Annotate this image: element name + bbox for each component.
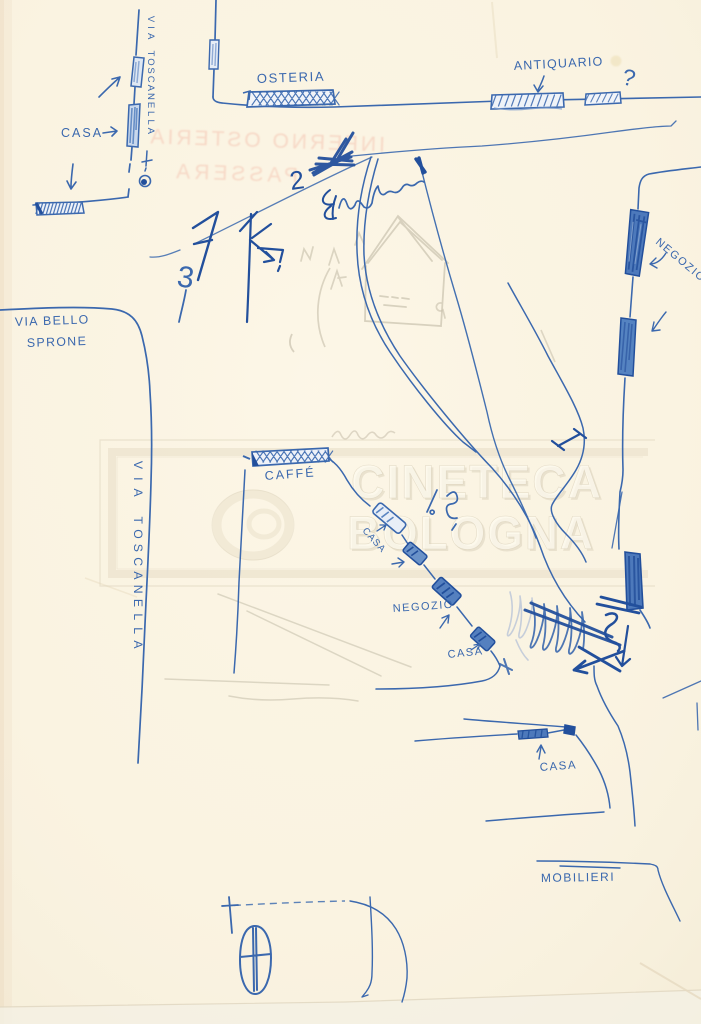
svg-text:A: A [131, 640, 145, 649]
svg-text:CINETECA: CINETECA [351, 455, 603, 508]
svg-text:A: A [145, 128, 156, 135]
svg-text:A: A [145, 33, 156, 40]
svg-text:A: A [145, 85, 156, 92]
svg-text:I: I [145, 26, 156, 29]
svg-text:O: O [145, 58, 156, 65]
svg-text:PASSERA: PASSERA [172, 160, 298, 187]
svg-text:C: C [145, 76, 156, 83]
svg-text:S: S [145, 67, 156, 73]
svg-text:L: L [145, 111, 156, 116]
svg-text:L: L [145, 120, 156, 125]
svg-text:A: A [131, 571, 145, 580]
svg-text:E: E [131, 599, 145, 607]
svg-text:T: T [131, 516, 145, 524]
svg-text:SPRONE: SPRONE [27, 334, 88, 350]
svg-text:MOBILIERI: MOBILIERI [541, 870, 615, 885]
svg-text:C: C [131, 557, 145, 566]
svg-text:E: E [145, 102, 156, 108]
svg-text:L: L [131, 627, 145, 634]
svg-text:VIA BELLO: VIA BELLO [15, 312, 90, 329]
svg-text:S: S [131, 544, 145, 552]
svg-text:O: O [131, 529, 145, 538]
svg-text:V: V [145, 16, 156, 23]
svg-text:N: N [131, 585, 145, 594]
svg-text:V: V [131, 461, 145, 470]
svg-text:N: N [145, 93, 156, 100]
svg-text:T: T [145, 50, 156, 56]
svg-text:L: L [131, 613, 145, 620]
svg-text:OSTERIA: OSTERIA [257, 69, 326, 86]
svg-text:A: A [131, 489, 145, 498]
svg-text:CASA: CASA [61, 126, 103, 140]
svg-text:I: I [131, 477, 145, 480]
